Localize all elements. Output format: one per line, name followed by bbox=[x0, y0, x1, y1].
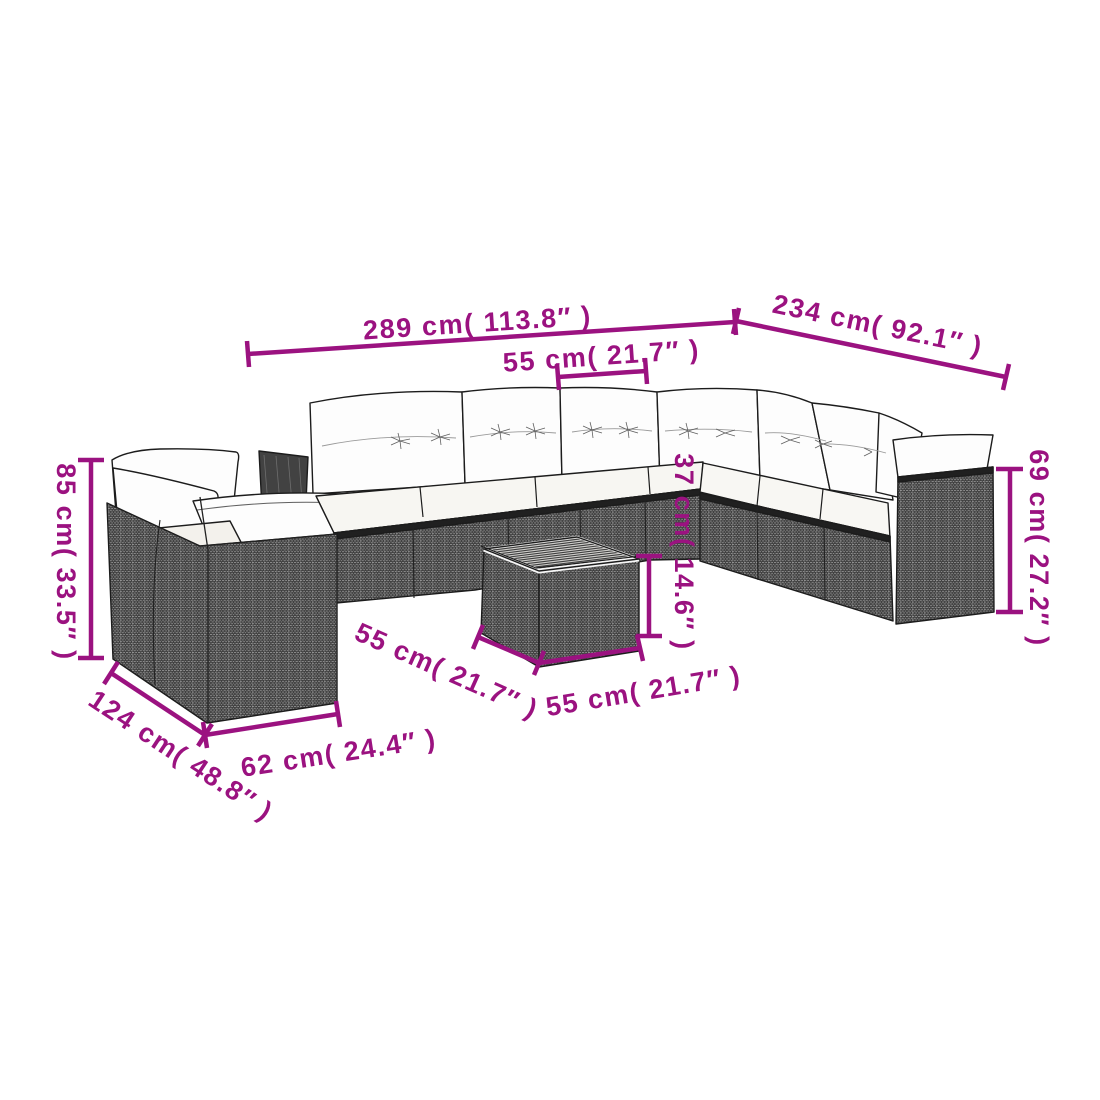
svg-text:85 cm( 33.5″ ): 85 cm( 33.5″ ) bbox=[51, 463, 81, 660]
svg-text:69 cm( 27.2″ ): 69 cm( 27.2″ ) bbox=[1024, 449, 1054, 646]
svg-text:37 cm( 14.6″ ): 37 cm( 14.6″ ) bbox=[669, 453, 699, 650]
